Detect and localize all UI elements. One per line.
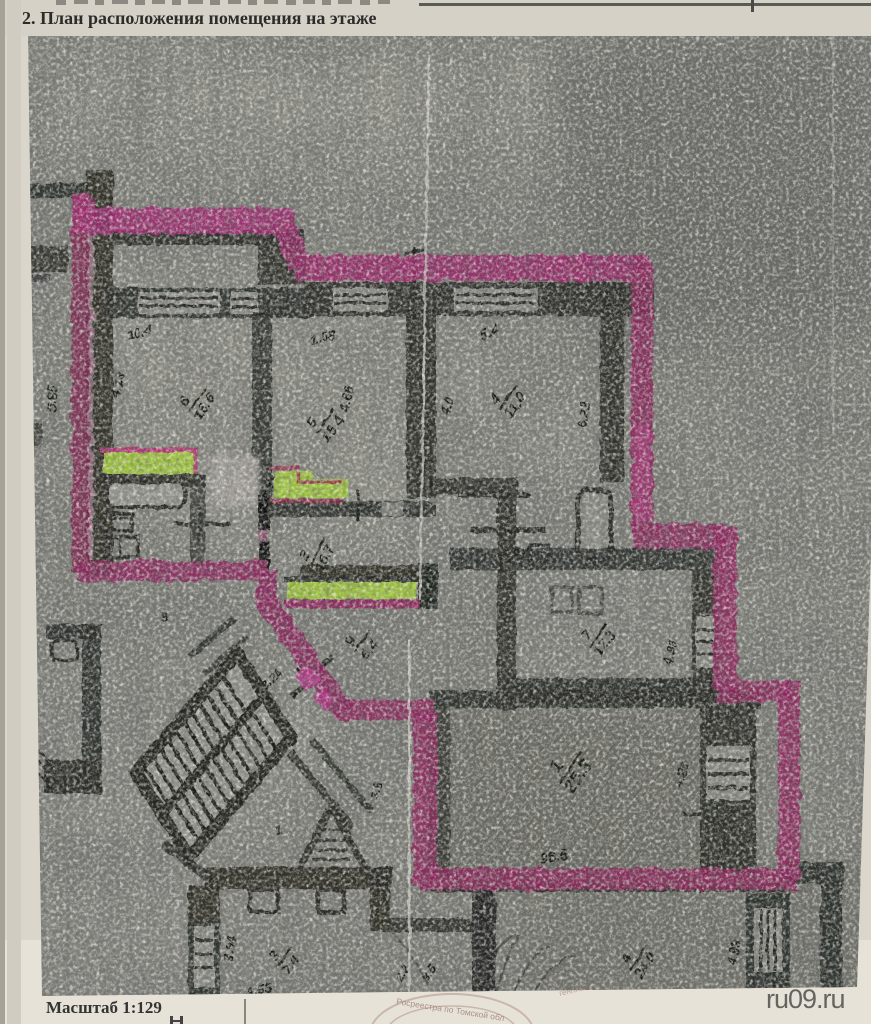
svg-text:Масштаб 1:129: Масштаб 1:129 — [46, 998, 162, 1017]
svg-text:2. План расположения помещения: 2. План расположения помещения на этаже — [22, 8, 377, 28]
svg-text:ru09.ru: ru09.ru — [766, 984, 845, 1014]
